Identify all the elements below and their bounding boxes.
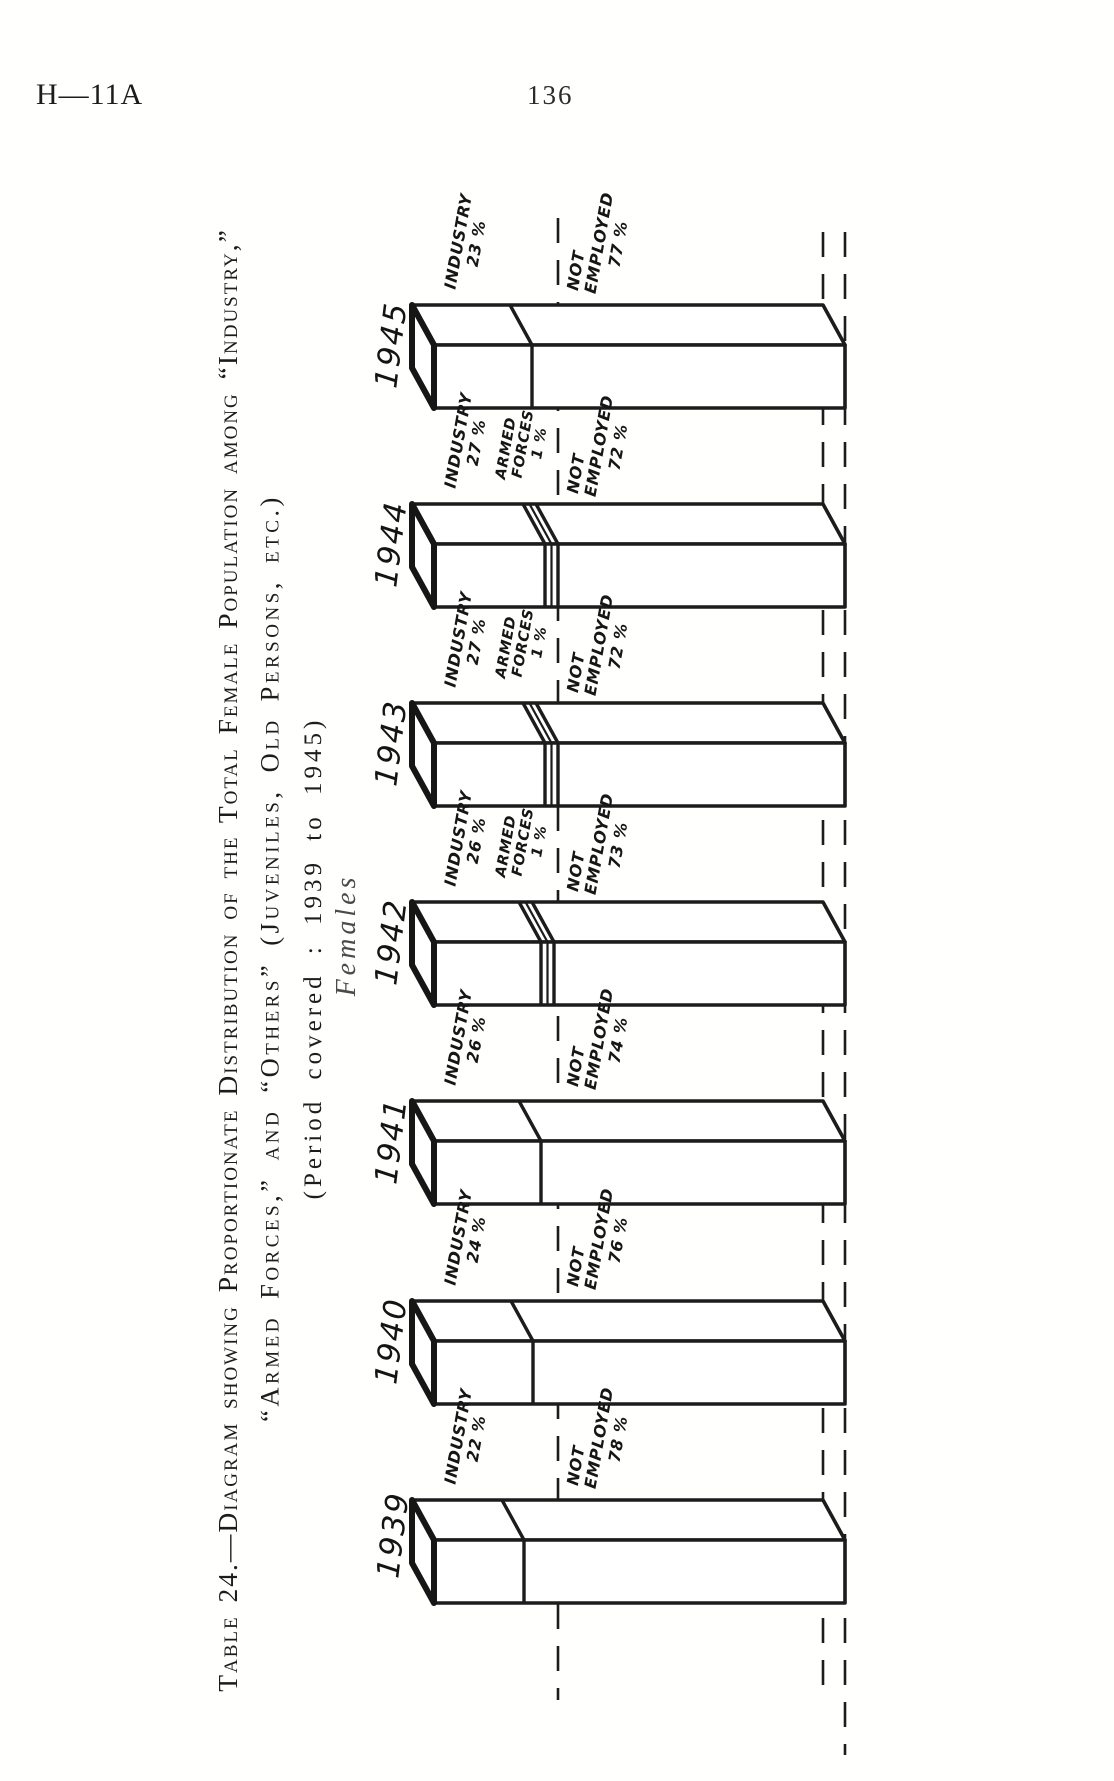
- bar-1939: [412, 1500, 845, 1603]
- bar-chart-canvas: [0, 0, 1114, 1781]
- bar-top-face: [412, 504, 845, 544]
- bar-front-face: [434, 1540, 845, 1603]
- bar-front-face: [434, 942, 845, 1005]
- bar-top-face: [412, 305, 845, 345]
- bar-1943: [412, 703, 845, 806]
- bar-front-face: [434, 345, 845, 408]
- bar-1941: [412, 1101, 845, 1204]
- bar-front-face: [434, 544, 845, 607]
- bar-1945: [412, 305, 845, 408]
- bar-front-face: [434, 743, 845, 806]
- bar-top-face: [412, 902, 845, 942]
- bar-front-face: [434, 1141, 845, 1204]
- bar-top-face: [412, 1301, 845, 1341]
- bar-top-face: [412, 1500, 845, 1540]
- bar-front-face: [434, 1341, 845, 1404]
- bar-1940: [412, 1301, 845, 1404]
- bar-1942: [412, 902, 845, 1005]
- bar-top-face: [412, 1101, 845, 1141]
- bar-1944: [412, 504, 845, 607]
- scanned-report-page: H—11A 136 Table 24.—Diagram showing Prop…: [0, 0, 1114, 1781]
- bar-top-face: [412, 703, 845, 743]
